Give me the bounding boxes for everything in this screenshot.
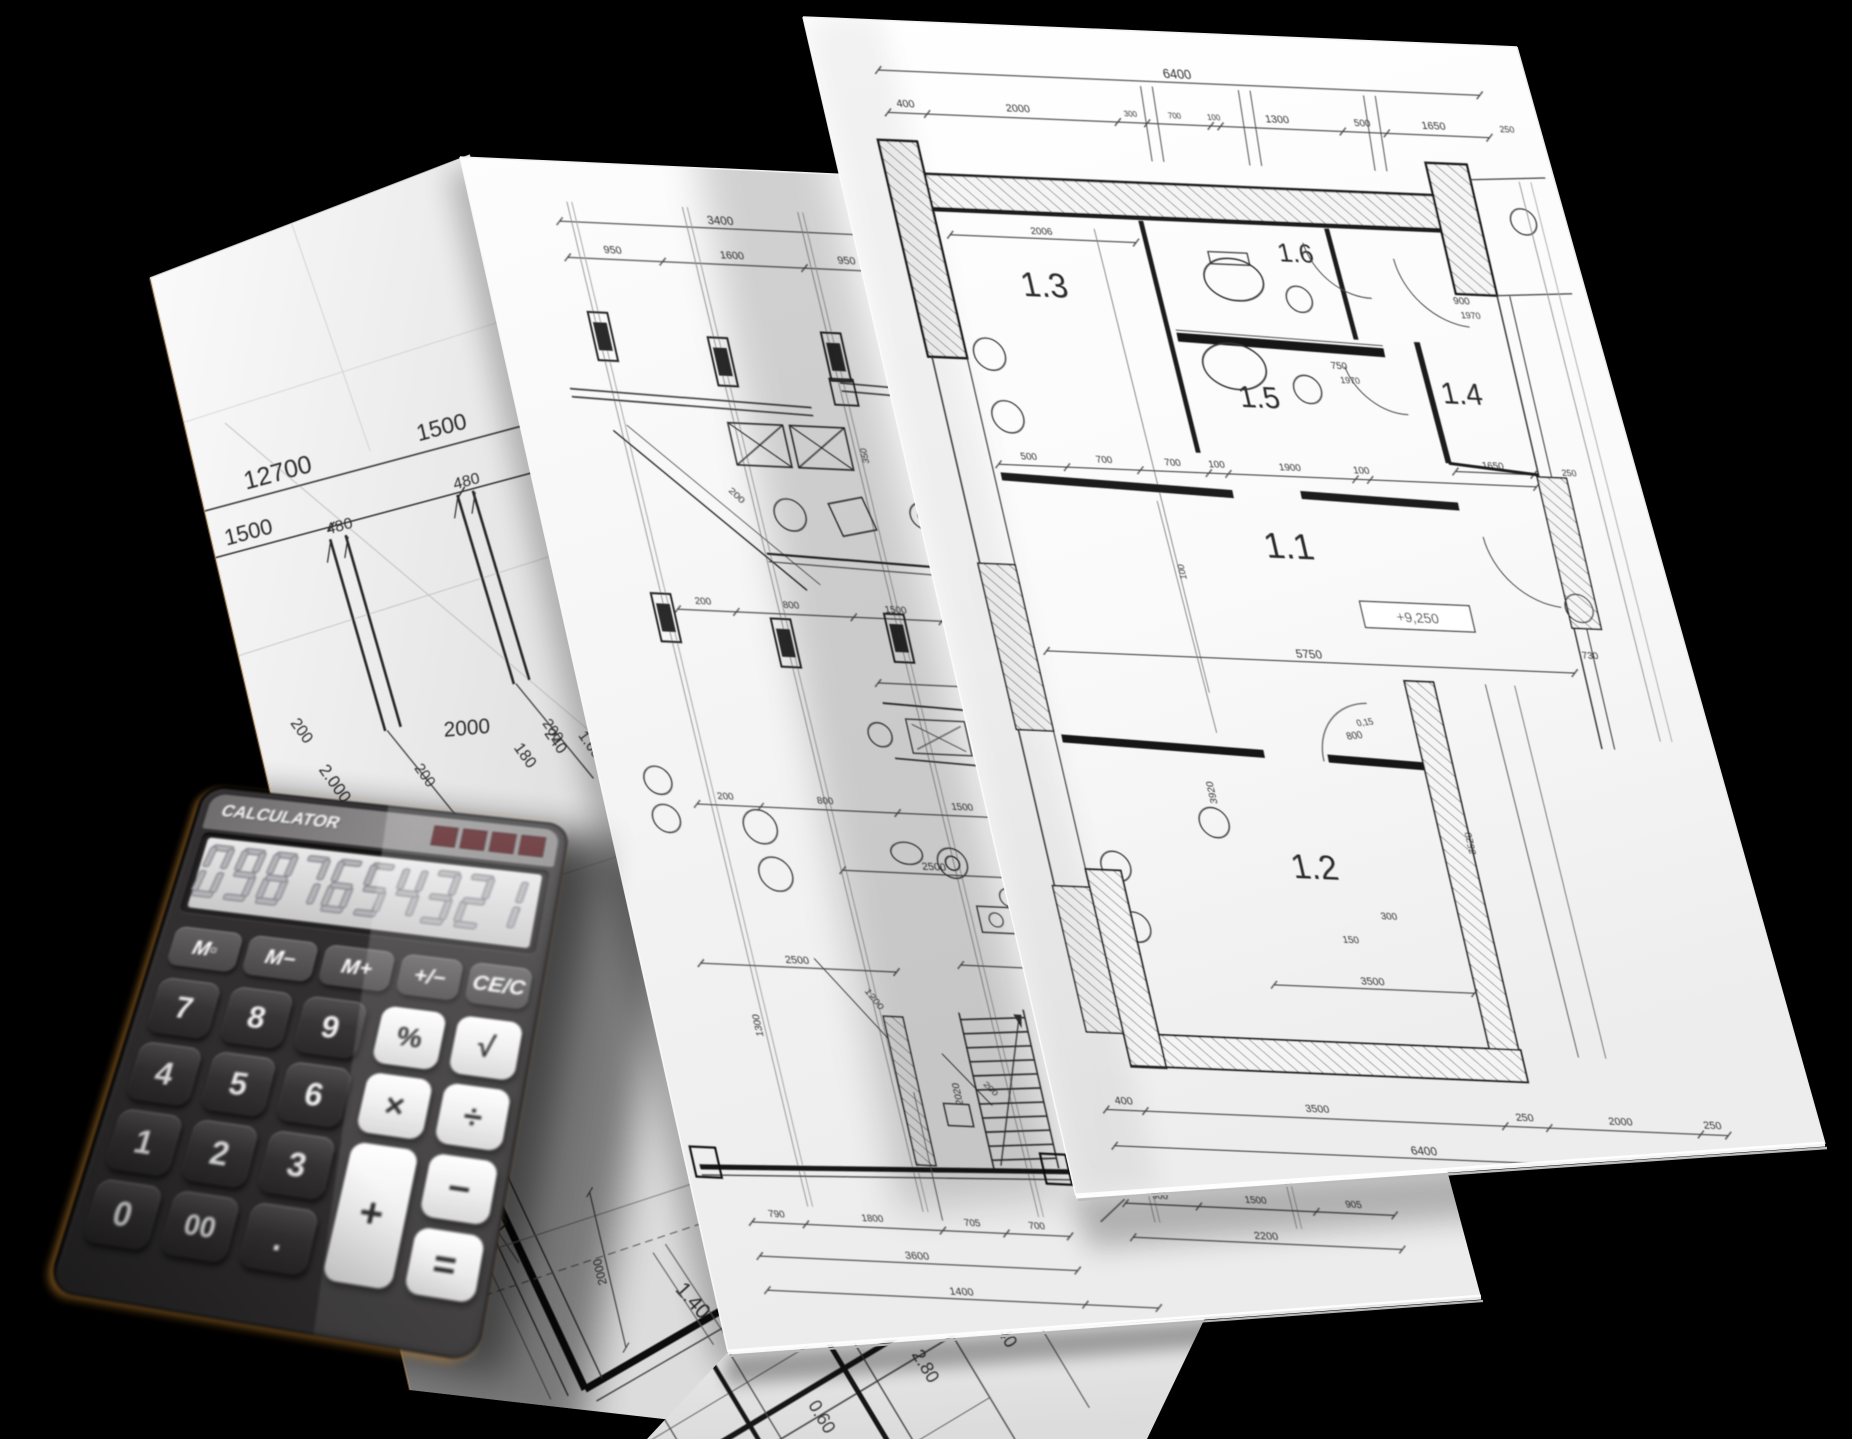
svg-text:3500: 3500 [1304, 1103, 1331, 1116]
svg-text:500: 500 [1019, 451, 1038, 463]
svg-text:250: 250 [1514, 1112, 1535, 1125]
svg-text:1800: 1800 [860, 1213, 885, 1225]
svg-text:3600: 3600 [904, 1250, 931, 1263]
svg-text:300: 300 [1380, 911, 1399, 923]
svg-text:0,15: 0,15 [1355, 716, 1375, 728]
svg-text:150: 150 [1342, 935, 1361, 947]
svg-text:100: 100 [1207, 459, 1226, 471]
svg-text:100: 100 [1352, 465, 1371, 477]
svg-text:1.3: 1.3 [1017, 266, 1072, 306]
svg-text:790: 790 [767, 1209, 786, 1221]
svg-text:730: 730 [1581, 650, 1600, 662]
svg-text:1650: 1650 [1420, 120, 1447, 133]
svg-text:700: 700 [1095, 454, 1114, 466]
svg-text:2006: 2006 [1030, 226, 1055, 238]
svg-text:500: 500 [1353, 118, 1372, 130]
svg-text:2000: 2000 [443, 715, 491, 742]
svg-text:6400: 6400 [1409, 1143, 1439, 1158]
svg-text:1.6: 1.6 [1274, 238, 1316, 270]
svg-text:1400: 1400 [948, 1286, 975, 1299]
svg-text:1970: 1970 [1339, 375, 1361, 386]
svg-text:1970: 1970 [1460, 310, 1482, 321]
svg-text:200: 200 [694, 596, 713, 608]
svg-text:2000: 2000 [1607, 1116, 1634, 1129]
svg-text:2500: 2500 [784, 954, 811, 967]
svg-text:200: 200 [716, 791, 735, 803]
svg-text:5750: 5750 [1294, 646, 1324, 661]
svg-text:250: 250 [1498, 124, 1515, 135]
svg-text:950: 950 [602, 244, 623, 257]
svg-text:2000: 2000 [1005, 102, 1032, 115]
svg-text:6400: 6400 [1161, 66, 1193, 82]
svg-text:1900: 1900 [1278, 462, 1303, 474]
svg-text:705: 705 [963, 1218, 982, 1230]
svg-text:900: 900 [1452, 296, 1471, 308]
svg-text:1.1: 1.1 [1259, 524, 1317, 567]
svg-text:750: 750 [1330, 361, 1349, 373]
svg-text:+9,250: +9,250 [1395, 609, 1441, 627]
svg-text:700: 700 [1163, 457, 1182, 469]
svg-text:1.4: 1.4 [1438, 377, 1486, 412]
svg-text:250: 250 [1561, 468, 1578, 479]
svg-text:1.5: 1.5 [1235, 381, 1283, 416]
svg-text:1300: 1300 [1264, 113, 1291, 126]
svg-text:1.2: 1.2 [1287, 848, 1342, 888]
svg-text:3500: 3500 [1359, 975, 1386, 988]
svg-text:250: 250 [1702, 1120, 1723, 1133]
